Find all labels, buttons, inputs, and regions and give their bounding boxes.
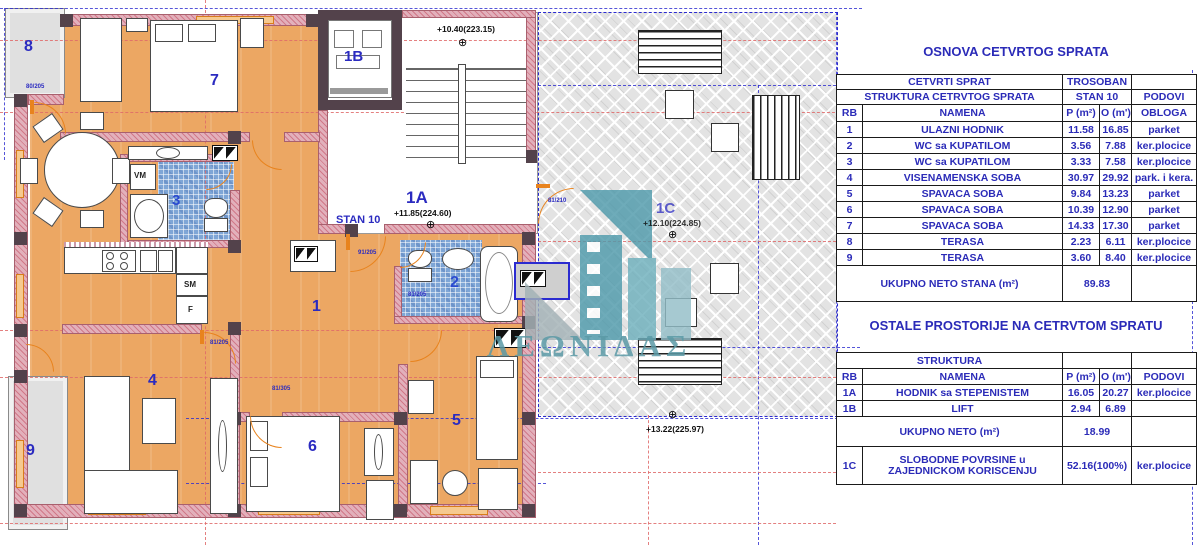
toilet-tank bbox=[204, 218, 228, 232]
col-header-p: P (m²) bbox=[1063, 369, 1100, 385]
col-header-rb: RB bbox=[837, 105, 863, 122]
lift-wall bbox=[318, 10, 402, 20]
cell-p: 16.05 bbox=[1063, 385, 1100, 401]
chair bbox=[80, 112, 104, 130]
door-leaf bbox=[346, 234, 350, 250]
label-f: F bbox=[188, 305, 193, 314]
cell-namena: LIFT bbox=[863, 401, 1063, 417]
door-dim: 81/205 bbox=[408, 292, 426, 298]
cell-o: 13.23 bbox=[1100, 186, 1132, 202]
dining-table bbox=[44, 132, 120, 208]
column bbox=[14, 232, 27, 245]
table-cell bbox=[1132, 353, 1197, 369]
cell-pod: ker.plocice bbox=[1132, 154, 1197, 170]
cell-o: 29.92 bbox=[1100, 170, 1132, 186]
cell-pod: ker.plocice bbox=[1132, 250, 1197, 266]
cell-o: 20.27 bbox=[1100, 385, 1132, 401]
window bbox=[16, 440, 24, 488]
bathtub-inner bbox=[485, 252, 513, 314]
cell-rb: 6 bbox=[837, 202, 863, 218]
door-leaf bbox=[200, 330, 204, 344]
door-leaf bbox=[536, 184, 550, 188]
table-cell bbox=[1132, 417, 1197, 447]
table-cell: TROSOBAN bbox=[1063, 75, 1132, 90]
cell-p: 11.58 bbox=[1063, 122, 1100, 138]
col-header-p: P (m²) bbox=[1063, 105, 1100, 122]
section2-title: OSTALE PROSTORIJE NA CETRVTOM SPRATU bbox=[836, 318, 1196, 333]
cell-namena: SLOBODNE POVRSINE u ZAJEDNICKOM KORISCEN… bbox=[863, 447, 1063, 485]
burner bbox=[106, 252, 114, 260]
table-row: 7SPAVACA SOBA14.3317.30parket bbox=[837, 218, 1197, 234]
wardrobe bbox=[408, 380, 434, 414]
chair bbox=[112, 158, 130, 184]
wall bbox=[384, 224, 536, 234]
room-label-2: 2 bbox=[450, 274, 459, 292]
coffee-table bbox=[142, 398, 176, 444]
room-label-4: 4 bbox=[148, 372, 157, 390]
cell-o: 6.89 bbox=[1100, 401, 1132, 417]
shaft-symbol bbox=[294, 246, 318, 262]
col-header-podovi: PODOVI bbox=[1132, 369, 1197, 385]
burner bbox=[106, 262, 114, 270]
door-dim: 91/205 bbox=[358, 250, 376, 256]
door-dim: 81/210 bbox=[548, 198, 566, 204]
cell-namena: SPAVACA SOBA bbox=[863, 186, 1063, 202]
room-label-1b: 1B bbox=[344, 48, 363, 65]
wall bbox=[398, 364, 408, 512]
wall bbox=[402, 10, 536, 18]
cell-pod: parket bbox=[1132, 122, 1197, 138]
column bbox=[14, 324, 27, 337]
label-vm: VM bbox=[134, 171, 146, 180]
column bbox=[306, 14, 319, 27]
pillow bbox=[155, 24, 183, 42]
tv bbox=[218, 420, 227, 472]
cell-namena: SPAVACA SOBA bbox=[863, 202, 1063, 218]
skylight bbox=[752, 95, 800, 180]
axis-line bbox=[0, 523, 836, 524]
table-row: 5SPAVACA SOBA9.8413.23parket bbox=[837, 186, 1197, 202]
column bbox=[394, 412, 407, 425]
cell-p: 3.56 bbox=[1063, 138, 1100, 154]
cell-p: 3.60 bbox=[1063, 250, 1100, 266]
column bbox=[522, 412, 535, 425]
vent-symbol bbox=[212, 145, 238, 161]
table-row: 3WC sa KUPATILOM3.337.58ker.plocice bbox=[837, 154, 1197, 170]
elevation-label-lower: +13.22(225.97) bbox=[646, 424, 704, 434]
wall bbox=[318, 110, 328, 232]
table-row: 9TERASA3.608.40ker.plocice bbox=[837, 250, 1197, 266]
sink bbox=[158, 250, 173, 272]
cell-namena: SPAVACA SOBA bbox=[863, 218, 1063, 234]
common-area-table: STRUKTURA RB NAMENA P (m²) O (m') PODOVI… bbox=[836, 352, 1197, 485]
cell-rb: 7 bbox=[837, 218, 863, 234]
lift-sill bbox=[330, 88, 388, 94]
cell-namena: TERASA bbox=[863, 250, 1063, 266]
cell-pod: ker.plocice bbox=[1132, 447, 1197, 485]
cell-rb: 1 bbox=[837, 122, 863, 138]
toilet-tank bbox=[408, 268, 432, 282]
column bbox=[394, 504, 407, 517]
table-row-1c: 1C SLOBODNE POVRSINE u ZAJEDNICKOM KORIS… bbox=[837, 447, 1197, 485]
lift-machine bbox=[334, 30, 354, 48]
table-cell: STAN 10 bbox=[1063, 90, 1132, 105]
room-label-8: 8 bbox=[24, 38, 33, 56]
floor-plan-sheet: ΛΕΩΝΙΔΑΣ 8 7 1B 3 STAN 10 1A 1C 1 2 4 9 … bbox=[0, 0, 1200, 545]
column bbox=[60, 14, 73, 27]
col-header-o: O (m') bbox=[1100, 369, 1132, 385]
cell-rb: 5 bbox=[837, 186, 863, 202]
room-label-1: 1 bbox=[312, 298, 321, 316]
table-row: 1AHODNIK sa STEPENISTEM16.0520.27ker.plo… bbox=[837, 385, 1197, 401]
table-row: 1ULAZNI HODNIK11.5816.85parket bbox=[837, 122, 1197, 138]
wall bbox=[62, 324, 202, 334]
column bbox=[228, 240, 241, 253]
cell-namena: VISENAMENSKA SOBA bbox=[863, 170, 1063, 186]
desk bbox=[410, 460, 438, 504]
floor-plan: ΛΕΩΝΙΔΑΣ 8 7 1B 3 STAN 10 1A 1C 1 2 4 9 … bbox=[0, 0, 840, 545]
cell-p: 10.39 bbox=[1063, 202, 1100, 218]
wall bbox=[284, 132, 320, 142]
cell-pod: parket bbox=[1132, 186, 1197, 202]
table-cell: PODOVI bbox=[1132, 90, 1197, 105]
door-dim: 80/205 bbox=[26, 84, 44, 90]
table-row: 2WC sa KUPATILOM3.567.88ker.plocice bbox=[837, 138, 1197, 154]
cell-o: 7.88 bbox=[1100, 138, 1132, 154]
skylight bbox=[638, 30, 722, 74]
total-row: UKUPNO NETO (m²) 18.99 bbox=[837, 417, 1197, 447]
table-row: 1BLIFT2.946.89 bbox=[837, 401, 1197, 417]
pillow bbox=[250, 457, 268, 487]
lift-machine bbox=[362, 30, 382, 48]
sink bbox=[140, 250, 157, 272]
nightstand bbox=[240, 18, 264, 48]
chair bbox=[20, 158, 38, 184]
cell-rb: 3 bbox=[837, 154, 863, 170]
cell-p: 3.33 bbox=[1063, 154, 1100, 170]
door-dim: 81/205 bbox=[210, 340, 228, 346]
cabinet bbox=[366, 480, 394, 520]
cell-namena: WC sa KUPATILOM bbox=[863, 138, 1063, 154]
cell-pod: parket bbox=[1132, 218, 1197, 234]
stair-stringer bbox=[458, 64, 466, 164]
col-header-namena: NAMENA bbox=[863, 369, 1063, 385]
room-label-9: 9 bbox=[26, 442, 35, 460]
pillow bbox=[188, 24, 216, 42]
toilet bbox=[204, 198, 228, 218]
apartment-area-table: CETVRTI SPRAT TROSOBAN STRUKTURA CETRVTO… bbox=[836, 74, 1197, 302]
wall bbox=[394, 266, 402, 318]
total-label: UKUPNO NETO (m²) bbox=[837, 417, 1063, 447]
cell-o: 17.30 bbox=[1100, 218, 1132, 234]
wall bbox=[526, 12, 536, 162]
chair bbox=[80, 210, 104, 228]
room-label-6: 6 bbox=[308, 438, 317, 456]
cell-namena: WC sa KUPATILOM bbox=[863, 154, 1063, 170]
cell-o: 7.58 bbox=[1100, 154, 1132, 170]
table-row: 6SPAVACA SOBA10.3912.90parket bbox=[837, 202, 1197, 218]
axis-line bbox=[538, 85, 836, 86]
cell-pod: ker.plocice bbox=[1132, 385, 1197, 401]
shower-basin bbox=[134, 199, 164, 233]
sheet-title: OSNOVA CETVRTOG SPRATA bbox=[836, 44, 1196, 59]
cell-rb: 2 bbox=[837, 138, 863, 154]
cell-pod: ker.plocice bbox=[1132, 234, 1197, 250]
cell-rb: 4 bbox=[837, 170, 863, 186]
roof-opening bbox=[711, 123, 739, 152]
table-cell bbox=[1132, 75, 1197, 90]
cell-rb: 8 bbox=[837, 234, 863, 250]
cell-namena: ULAZNI HODNIK bbox=[863, 122, 1063, 138]
door-leaf bbox=[30, 100, 34, 114]
cell-o: 12.90 bbox=[1100, 202, 1132, 218]
cell-p: 2.23 bbox=[1063, 234, 1100, 250]
elevation-label-terrace: +12.10(224.85) bbox=[643, 218, 701, 228]
col-header-rb: RB bbox=[837, 369, 863, 385]
elevation-marker-icon: ⊕ bbox=[668, 230, 677, 240]
burner bbox=[120, 262, 128, 270]
sofa-chaise bbox=[84, 470, 178, 514]
cell-value: 52.16(100%) bbox=[1063, 447, 1132, 485]
elevation-label-hall: +11.85(224.60) bbox=[394, 208, 451, 218]
table-cell: STRUKTURA CETRVTOG SPRATA bbox=[837, 90, 1063, 105]
elevation-marker-icon: ⊕ bbox=[668, 410, 677, 420]
cell-rb: 1B bbox=[837, 401, 863, 417]
lift-wall bbox=[318, 100, 402, 110]
label-sm: SM bbox=[184, 280, 196, 289]
lift-wall bbox=[392, 10, 402, 110]
cell-namena: TERASA bbox=[863, 234, 1063, 250]
cell-p: 2.94 bbox=[1063, 401, 1100, 417]
stan-label: STAN 10 bbox=[336, 214, 380, 226]
cell-o: 6.11 bbox=[1100, 234, 1132, 250]
total-value: 89.83 bbox=[1063, 266, 1132, 302]
cell-pod bbox=[1132, 401, 1197, 417]
room-label-1c: 1C bbox=[656, 200, 675, 217]
company-logo bbox=[525, 190, 715, 340]
table-row: 4VISENAMENSKA SOBA30.9729.92park. i kera… bbox=[837, 170, 1197, 186]
cell-pod: parket bbox=[1132, 202, 1197, 218]
room-label-3: 3 bbox=[172, 192, 180, 209]
total-value: 18.99 bbox=[1063, 417, 1132, 447]
desk-chair bbox=[442, 470, 468, 496]
cell-rb: 9 bbox=[837, 250, 863, 266]
column bbox=[228, 131, 241, 144]
cell-namena: HODNIK sa STEPENISTEM bbox=[863, 385, 1063, 401]
watermark-text: ΛΕΩΝΙΔΑΣ bbox=[487, 328, 691, 364]
cell-o: 16.85 bbox=[1100, 122, 1132, 138]
table-cell: STRUKTURA bbox=[837, 353, 1063, 369]
column bbox=[14, 504, 27, 517]
elevation-marker-icon: ⊕ bbox=[458, 38, 467, 48]
cell-pod: ker.plocice bbox=[1132, 138, 1197, 154]
total-row: UKUPNO NETO STANA (m²) 89.83 bbox=[837, 266, 1197, 302]
cell-o: 8.40 bbox=[1100, 250, 1132, 266]
room-label-1a: 1A bbox=[406, 188, 428, 208]
column bbox=[228, 322, 241, 335]
basin bbox=[156, 147, 180, 159]
door-dim: 81/305 bbox=[272, 386, 290, 392]
roof-opening bbox=[665, 90, 694, 119]
lift-wall bbox=[318, 10, 328, 110]
col-header-obloga: OBLOGA bbox=[1132, 105, 1197, 122]
table-cell bbox=[1132, 266, 1197, 302]
stairs bbox=[406, 68, 526, 163]
table-row: 8TERASA2.236.11ker.plocice bbox=[837, 234, 1197, 250]
side-table bbox=[478, 468, 518, 510]
wardrobe bbox=[80, 18, 122, 102]
cell-p: 9.84 bbox=[1063, 186, 1100, 202]
nightstand bbox=[126, 18, 148, 32]
cell-p: 30.97 bbox=[1063, 170, 1100, 186]
cell-p: 14.33 bbox=[1063, 218, 1100, 234]
table-cell: CETVRTI SPRAT bbox=[837, 75, 1063, 90]
col-header-o: O (m') bbox=[1100, 105, 1132, 122]
table-cell bbox=[1063, 353, 1132, 369]
column bbox=[522, 504, 535, 517]
cell-rb: 1A bbox=[837, 385, 863, 401]
axis-line bbox=[0, 8, 862, 9]
kitchen-corner bbox=[176, 247, 208, 274]
cell-rb: 1C bbox=[837, 447, 863, 485]
cell-pod: park. i kera. bbox=[1132, 170, 1197, 186]
axis-line bbox=[538, 472, 836, 473]
elevation-marker-icon: ⊕ bbox=[426, 220, 435, 230]
col-header-namena: NAMENA bbox=[863, 105, 1063, 122]
axis-line bbox=[4, 8, 5, 160]
window bbox=[16, 274, 24, 318]
elevation-label-stair: +10.40(223.15) bbox=[437, 24, 495, 34]
column bbox=[14, 94, 27, 107]
room-label-5: 5 bbox=[452, 412, 461, 430]
basin bbox=[442, 248, 474, 270]
room-label-7: 7 bbox=[210, 72, 219, 90]
total-label: UKUPNO NETO STANA (m²) bbox=[837, 266, 1063, 302]
axis-line bbox=[648, 415, 649, 545]
mirror bbox=[374, 434, 383, 470]
burner bbox=[120, 252, 128, 260]
